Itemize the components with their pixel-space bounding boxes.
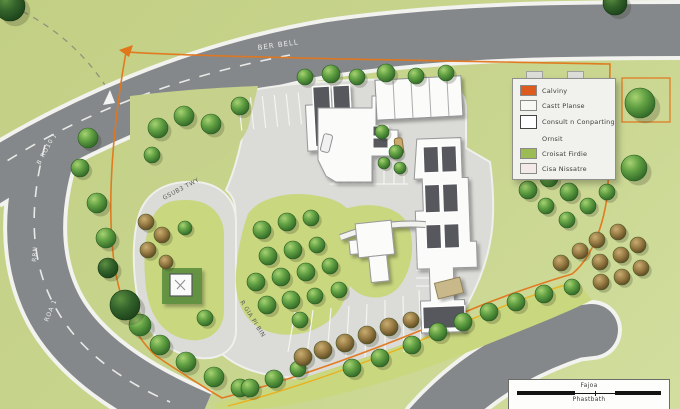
tree-icon <box>253 221 271 239</box>
tree-icon <box>380 318 398 336</box>
tree-icon <box>375 125 389 139</box>
kiosk <box>162 268 202 304</box>
tree-icon <box>297 263 315 281</box>
tree-icon <box>349 69 365 85</box>
tree-icon <box>284 241 302 259</box>
tree-icon <box>154 227 170 243</box>
tree-icon <box>403 336 421 354</box>
scale-bar-top-label: Fajoa <box>580 382 597 389</box>
site-plan-drawing: BER BELL B RO10 J RRN ROA 1 GSUB3 TWY R … <box>0 0 680 409</box>
legend-swatch-pink <box>520 163 537 174</box>
legend-label: Cisa Nissatre <box>542 165 587 173</box>
tree-icon <box>110 290 140 320</box>
site-plan: BER BELL B RO10 J RRN ROA 1 GSUB3 TWY R … <box>0 0 680 409</box>
tree-icon <box>621 155 647 181</box>
tree-icon <box>343 359 361 377</box>
tree-icon <box>201 114 221 134</box>
tree-icon <box>408 68 424 84</box>
legend-item: Ornsit <box>520 133 610 144</box>
tree-icon <box>138 214 154 230</box>
tree-icon <box>258 296 276 314</box>
tree-icon <box>592 254 608 270</box>
tree-icon <box>438 65 454 81</box>
tree-icon <box>259 247 277 265</box>
tree-icon <box>159 255 173 269</box>
tree-icon <box>336 334 354 352</box>
tree-icon <box>176 352 196 372</box>
tree-icon <box>278 213 296 231</box>
tree-icon <box>633 260 649 276</box>
scale-bar-segment <box>575 393 615 394</box>
tree-icon <box>610 224 626 240</box>
legend-label: Consult n Conparting <box>542 118 615 126</box>
tree-icon <box>98 258 118 278</box>
scale-bar-segment <box>615 391 661 395</box>
tree-icon <box>204 367 224 387</box>
tree-icon <box>174 106 194 126</box>
scale-bar: Fajoa Phastbath <box>508 379 670 409</box>
tree-icon <box>297 69 313 85</box>
tree-icon <box>144 147 160 163</box>
tree-icon <box>272 268 290 286</box>
legend-label: Castt Planse <box>542 102 585 110</box>
legend-item: Calviny <box>520 85 610 96</box>
tree-icon <box>265 370 283 388</box>
tree-icon <box>593 274 609 290</box>
tree-icon <box>394 162 406 174</box>
tree-icon <box>150 335 170 355</box>
tree-icon <box>322 258 338 274</box>
tree-icon <box>535 285 553 303</box>
legend-swatch-orange <box>520 85 537 96</box>
tree-icon <box>580 198 596 214</box>
tree-icon <box>148 118 168 138</box>
tree-icon <box>560 183 578 201</box>
tree-icon <box>247 273 265 291</box>
tree-icon <box>507 293 525 311</box>
tree-icon <box>403 312 419 328</box>
tree-icon <box>389 145 403 159</box>
legend-item: Castt Planse <box>520 100 610 111</box>
tree-icon <box>292 312 308 328</box>
tree-icon <box>282 291 300 309</box>
legend-label: Croisat Firdie <box>542 150 587 158</box>
tree-icon <box>553 255 569 271</box>
legend-label: Ornsit <box>542 135 563 143</box>
tree-icon <box>630 237 646 253</box>
tree-icon <box>378 157 390 169</box>
legend-item: Croisat Firdie <box>520 148 610 159</box>
tree-icon <box>429 323 447 341</box>
tree-icon <box>599 184 615 200</box>
tree-icon <box>309 237 325 253</box>
tree-icon <box>559 212 575 228</box>
tree-icon <box>358 326 376 344</box>
tree-icon <box>78 128 98 148</box>
tree-icon <box>87 193 107 213</box>
tree-icon <box>307 288 323 304</box>
tree-icon <box>572 243 588 259</box>
legend-swatch-outline <box>520 115 537 129</box>
legend-label: Calviny <box>542 87 567 95</box>
legend-item: Cisa Nissatre <box>520 163 610 174</box>
tree-icon <box>322 65 340 83</box>
scale-bar-bottom-label: Phastbath <box>573 396 606 403</box>
tree-icon <box>197 310 213 326</box>
tree-icon <box>613 247 629 263</box>
legend-panel: Calviny Castt Planse Consult n Conpartin… <box>512 78 616 180</box>
tree-icon <box>625 88 655 118</box>
tree-icon <box>377 64 395 82</box>
tree-icon <box>480 303 498 321</box>
tree-icon <box>140 242 156 258</box>
tree-icon <box>371 349 389 367</box>
legend-item: Consult n Conparting <box>520 115 610 129</box>
tree-icon <box>303 210 319 226</box>
tree-icon <box>614 269 630 285</box>
legend-swatch-white <box>520 100 537 111</box>
tree-icon <box>231 97 249 115</box>
scale-bar-graphic <box>517 391 661 395</box>
tree-icon <box>589 232 605 248</box>
west-road-mid-label: RRN <box>31 246 39 262</box>
tree-icon <box>96 228 116 248</box>
tree-icon <box>538 198 554 214</box>
tree-icon <box>564 279 580 295</box>
tree-icon <box>454 313 472 331</box>
tree-icon <box>294 348 312 366</box>
scale-bar-segment <box>517 391 575 395</box>
tree-icon <box>71 159 89 177</box>
legend-swatch-green <box>520 148 537 159</box>
tree-icon <box>178 221 192 235</box>
tree-icon <box>241 379 259 397</box>
tree-icon <box>314 341 332 359</box>
tree-icon <box>331 282 347 298</box>
tree-icon <box>519 181 537 199</box>
